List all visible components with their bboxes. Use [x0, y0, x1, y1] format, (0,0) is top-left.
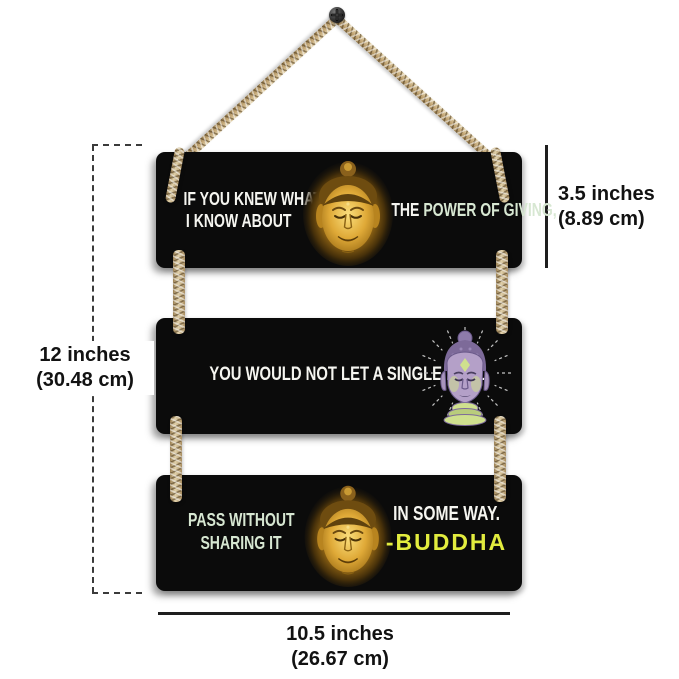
width-dimension-line: [158, 612, 510, 615]
quote-line: SHARING IT: [200, 532, 281, 555]
connector-rope-left-1: [173, 250, 185, 334]
quote-plank-3: PASS WITHOUT SHARING IT IN SOME WAY. -BU…: [156, 475, 522, 591]
buddha-signature: -BUDDHA: [374, 531, 519, 554]
quote-highlight: POWER OF GIVING,: [423, 200, 556, 220]
dimension-value: 3.5 inches: [558, 182, 670, 207]
quote-line: I KNOW ABOUT: [186, 210, 292, 232]
connector-rope-right-1: [496, 250, 508, 334]
connector-rope-left-2: [170, 416, 182, 502]
stylized-buddha-icon: [418, 322, 512, 428]
plank1-left-text: IF YOU KNEW WHAT I KNOW ABOUT: [164, 188, 314, 232]
hanging-rope-right: [333, 14, 503, 169]
product-image: IF YOU KNEW WHAT I KNOW ABOUT: [0, 0, 679, 679]
plank3-left-text: PASS WITHOUT SHARING IT: [166, 509, 316, 555]
plank3-right-text: IN SOME WAY. -BUDDHA: [374, 503, 519, 554]
dimension-value-metric: (30.48 cm): [16, 368, 154, 393]
plank2-text: YOU WOULD NOT LET A SINGLE MEAL: [170, 364, 432, 386]
width-dimension-label: 10.5 inches (26.67 cm): [238, 622, 442, 672]
dimension-value-metric: (26.67 cm): [238, 647, 442, 672]
dimension-value: 10.5 inches: [238, 622, 442, 647]
connector-rope-right-2: [494, 416, 506, 502]
screw-nail-icon: [329, 7, 345, 23]
quote-plank-1: IF YOU KNEW WHAT I KNOW ABOUT: [156, 152, 522, 268]
hanging-rope-left: [176, 14, 341, 167]
plank1-right-text: THE POWER OF GIVING,: [368, 200, 518, 221]
height-dimension-cap-top: [92, 144, 142, 146]
dimension-value-metric: (8.89 cm): [558, 207, 670, 232]
quote-plank-2: YOU WOULD NOT LET A SINGLE MEAL: [156, 318, 522, 434]
quote-line: IN SOME WAY.: [393, 503, 500, 526]
height-dimension-cap-bottom: [92, 592, 142, 594]
height-dimension-label: 12 inches (30.48 cm): [16, 341, 154, 395]
quote-line: PASS WITHOUT: [188, 509, 295, 532]
dimension-value: 12 inches: [16, 343, 154, 368]
quote-line: THE: [391, 200, 423, 220]
plank-height-dimension-label: 3.5 inches (8.89 cm): [558, 182, 670, 232]
